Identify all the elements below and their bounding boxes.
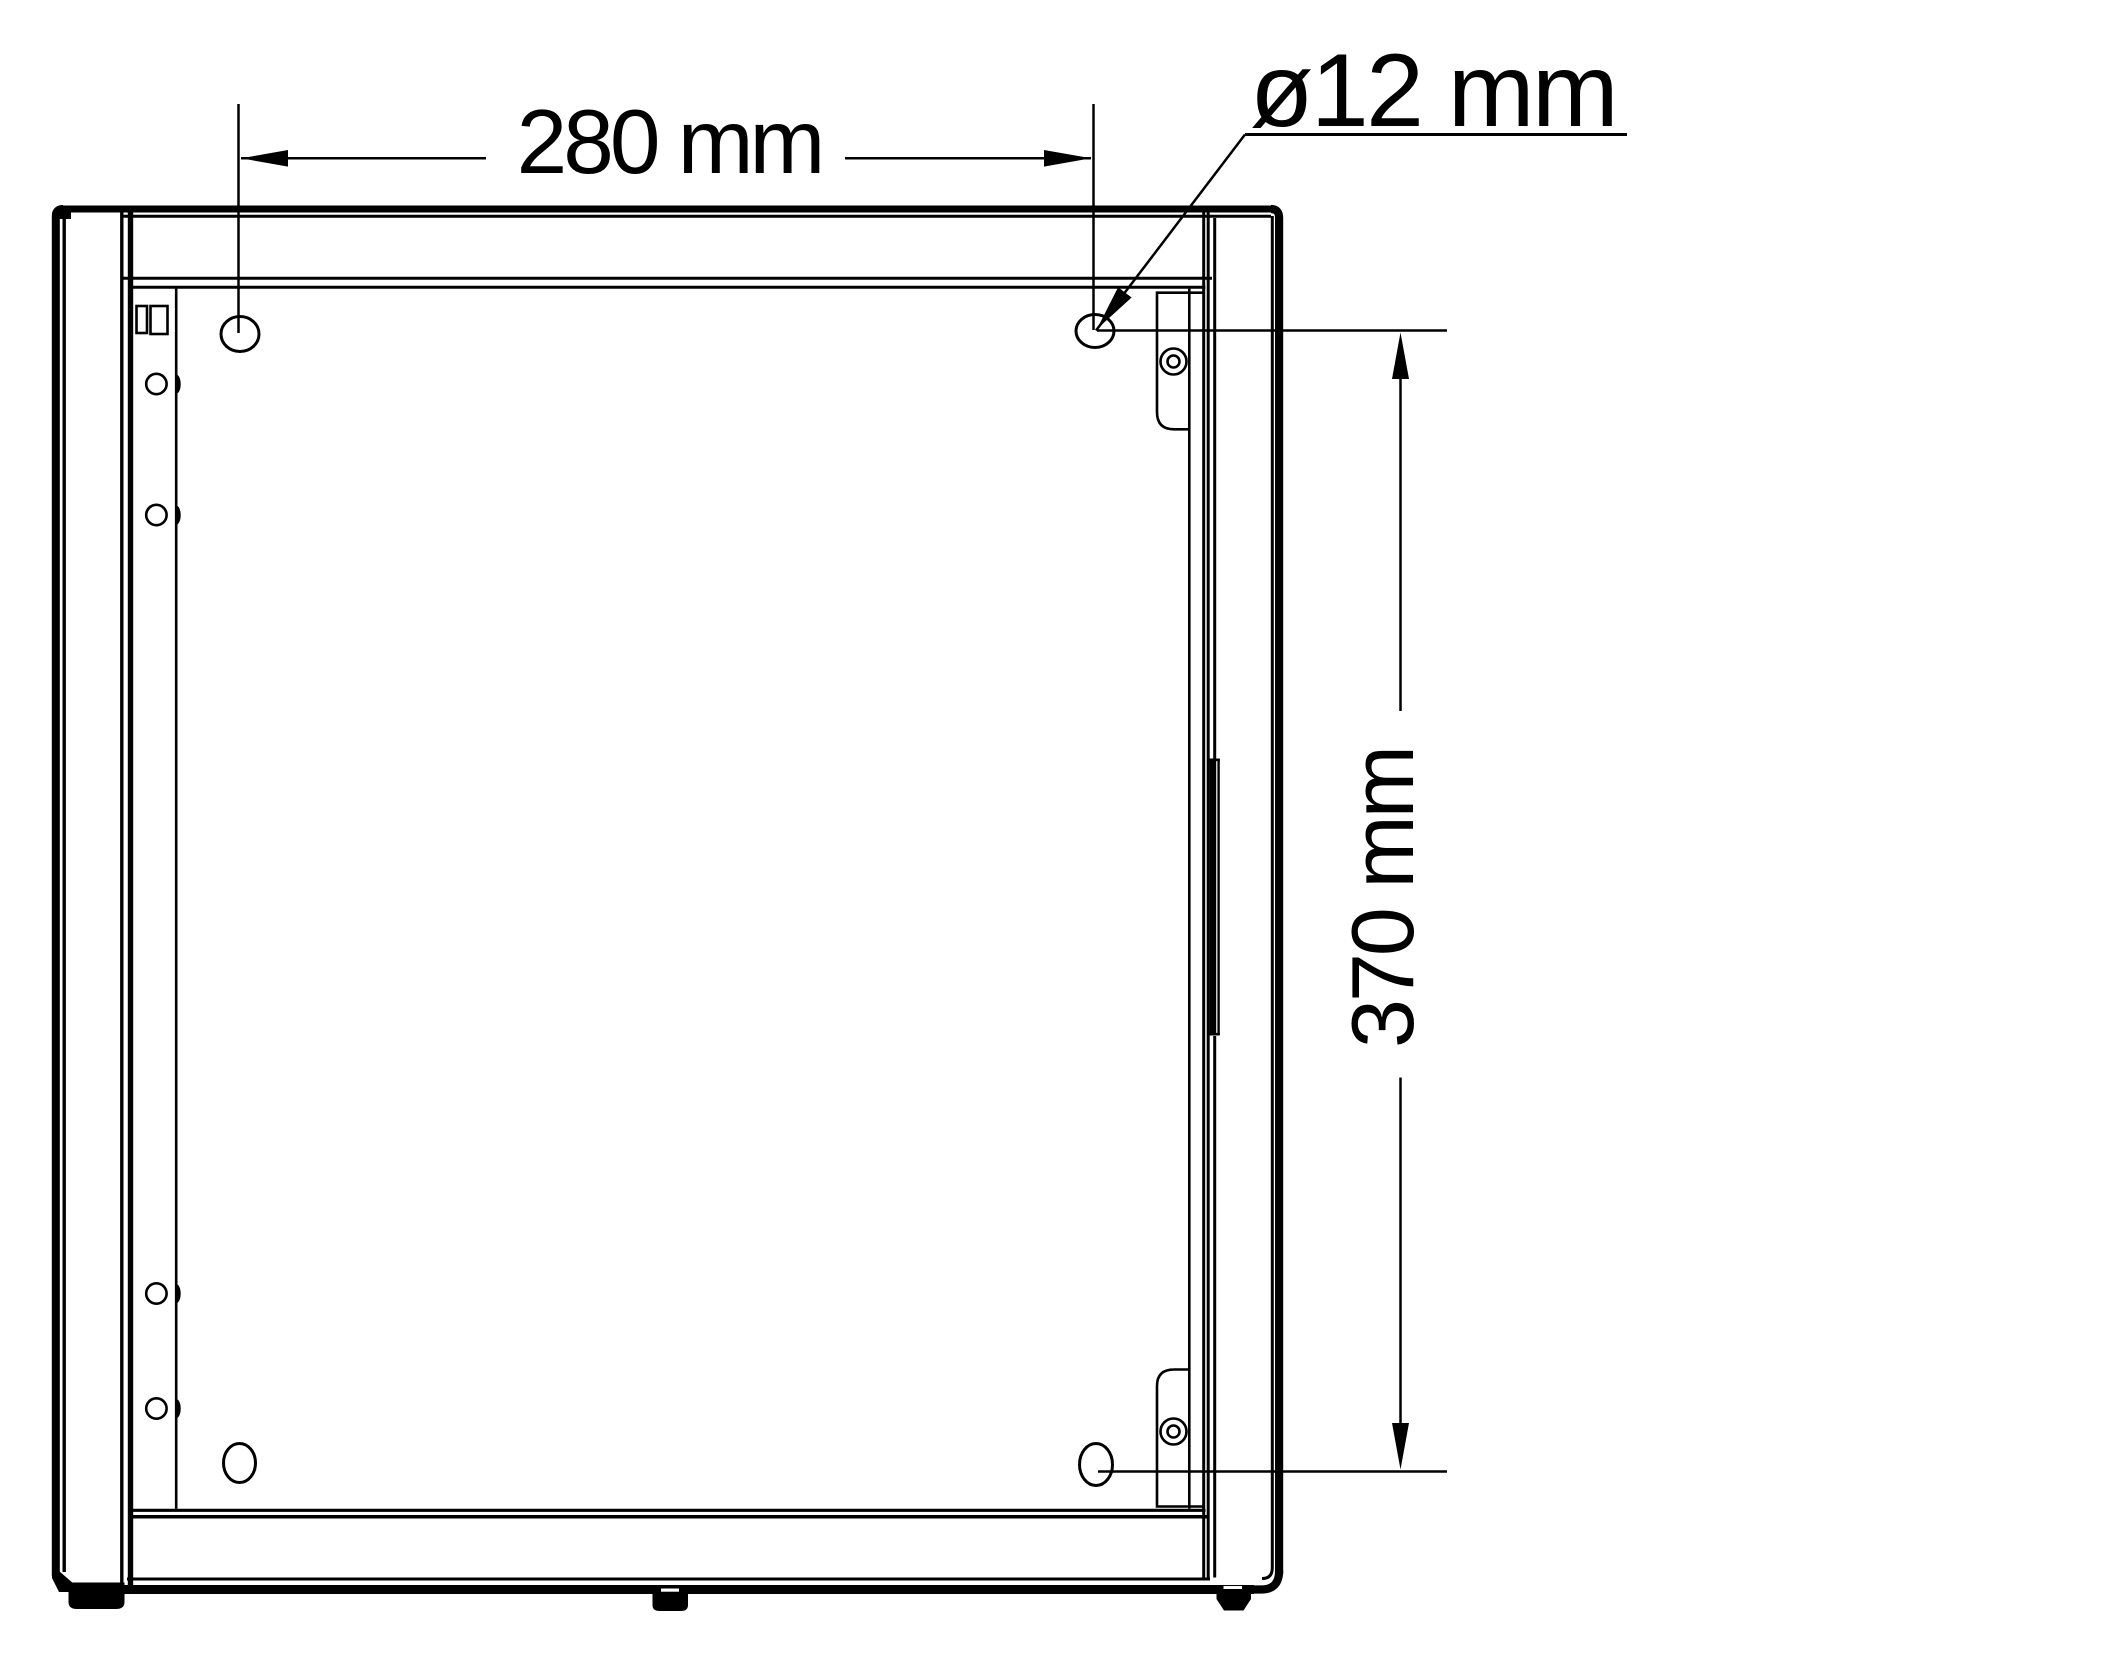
svg-text:370 mm: 370 mm bbox=[1333, 748, 1432, 1048]
svg-text:ø12 mm: ø12 mm bbox=[1250, 33, 1616, 149]
svg-text:280 mm: 280 mm bbox=[517, 92, 822, 193]
